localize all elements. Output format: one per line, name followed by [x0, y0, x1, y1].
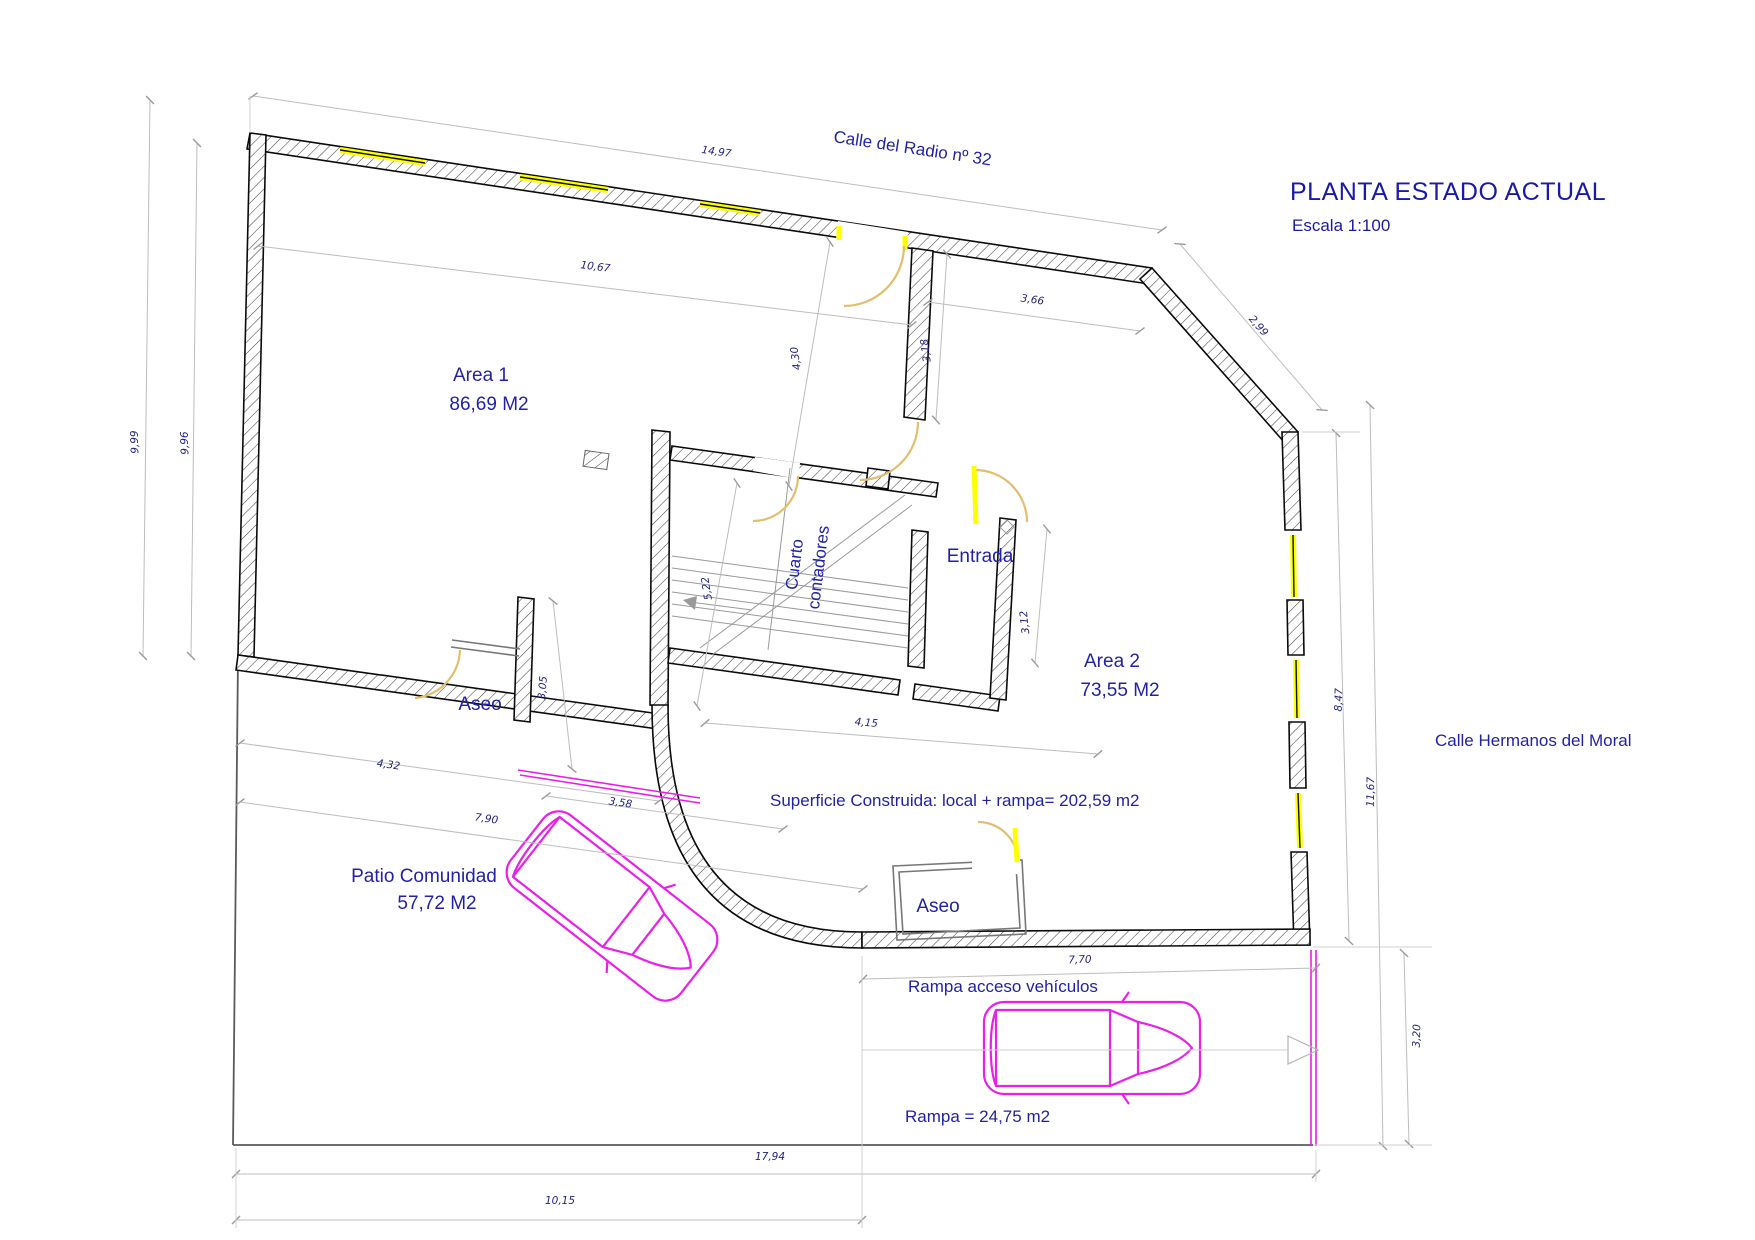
- core-left-wall: [650, 430, 670, 707]
- dim-8-47: 8,47: [1333, 688, 1346, 712]
- dim-5-22: 5,22: [699, 576, 715, 601]
- area2-area: 73,55 M2: [1080, 680, 1159, 701]
- dim-9-96: 9,96: [179, 431, 192, 455]
- column: [583, 450, 609, 469]
- dim-17-94: 17,94: [755, 1151, 785, 1163]
- dim-3-12: 3,12: [1018, 610, 1032, 635]
- extension-lines: [236, 96, 1432, 1228]
- right-wall: [1282, 432, 1310, 945]
- patio-car: [492, 795, 731, 1016]
- rampa-area-label: Rampa = 24,75 m2: [905, 1107, 1050, 1126]
- dim-3-05: 3,05: [536, 675, 550, 700]
- aseo1-partition-wall: [514, 597, 534, 722]
- dim-14-97: 14,97: [701, 144, 733, 160]
- dim-10-67: 10,67: [580, 259, 612, 275]
- floor-plan-page: 14,97 10,67 9,99 9,96 4,30 3,18 3,66 2,9…: [0, 0, 1755, 1240]
- floor-plan-svg: 14,97 10,67 9,99 9,96 4,30 3,18 3,66 2,9…: [0, 0, 1755, 1240]
- aseo1-label: Aseo: [458, 694, 501, 715]
- patio-name: Patio Comunidad: [351, 866, 497, 887]
- rampa-acceso-label: Rampa acceso vehículos: [908, 977, 1098, 996]
- page-title: PLANTA ESTADO ACTUAL: [1290, 178, 1606, 206]
- aseo2-jamb-icon: [1015, 828, 1017, 862]
- dim-10-15: 10,15: [545, 1195, 575, 1207]
- area2-name: Area 2: [1084, 651, 1140, 672]
- entrada-label: Entrada: [947, 546, 1014, 567]
- entrance-door-arc-icon: [844, 246, 904, 306]
- dim-3-18: 3,18: [918, 338, 933, 363]
- dim-4-32: 4,32: [376, 757, 401, 772]
- building-walls: [236, 133, 1310, 948]
- stair-core-right-wall: [908, 530, 928, 668]
- doors: [415, 246, 1027, 698]
- stair-door-arc-icon: [753, 476, 798, 521]
- right-wall-windows: [1293, 535, 1300, 848]
- ramp-direction-arrow-icon: [862, 1036, 1318, 1064]
- page-scale: Escala 1:100: [1292, 216, 1390, 235]
- ramp-car: [984, 992, 1200, 1104]
- dim-7-90: 7,90: [474, 811, 499, 826]
- aseo2-room: [893, 822, 1026, 940]
- entrada-door-arc-icon: [975, 470, 1027, 522]
- dim-3-66: 3,66: [1020, 292, 1045, 307]
- area1-name: Area 1: [453, 365, 509, 386]
- street-label-right: Calle Hermanos del Moral: [1435, 731, 1632, 750]
- dim-3-58: 3,58: [608, 795, 633, 810]
- left-wall: [238, 133, 266, 657]
- stair-direction-arrow-icon: [683, 596, 697, 610]
- text-labels: PLANTA ESTADO ACTUAL Escala 1:100 Calle …: [351, 127, 1631, 1126]
- cuarto-contadores-line1: Cuarto: [782, 538, 807, 591]
- stair-core-top-wall: [670, 446, 938, 497]
- curved-corner-wall: [652, 705, 862, 948]
- superficie-note: Superficie Construida: local + rampa= 20…: [770, 791, 1139, 810]
- dim-4-30: 4,30: [788, 346, 803, 371]
- aseo2-door-arc-icon: [978, 822, 1018, 862]
- dim-3-20: 3,20: [1411, 1024, 1424, 1048]
- street-label-top: Calle del Radio nº 32: [832, 127, 992, 169]
- area1-area: 86,69 M2: [449, 394, 528, 415]
- dim-7-70: 7,70: [1068, 954, 1092, 967]
- chamfer-wall: [1140, 268, 1298, 443]
- dim-4-15: 4,15: [854, 716, 879, 730]
- dim-9-99: 9,99: [129, 430, 142, 454]
- aseo2-label: Aseo: [916, 896, 959, 917]
- interior-stub-wall: [904, 248, 933, 420]
- dim-11-67: 11,67: [1365, 776, 1378, 807]
- patio-area: 57,72 M2: [397, 893, 476, 914]
- dimension-lines: [143, 96, 1432, 1228]
- stair-core-bottom-wall2: [913, 684, 1000, 711]
- entrada-jamb-icon: [974, 466, 976, 524]
- area1-bottom-wall: [236, 655, 660, 729]
